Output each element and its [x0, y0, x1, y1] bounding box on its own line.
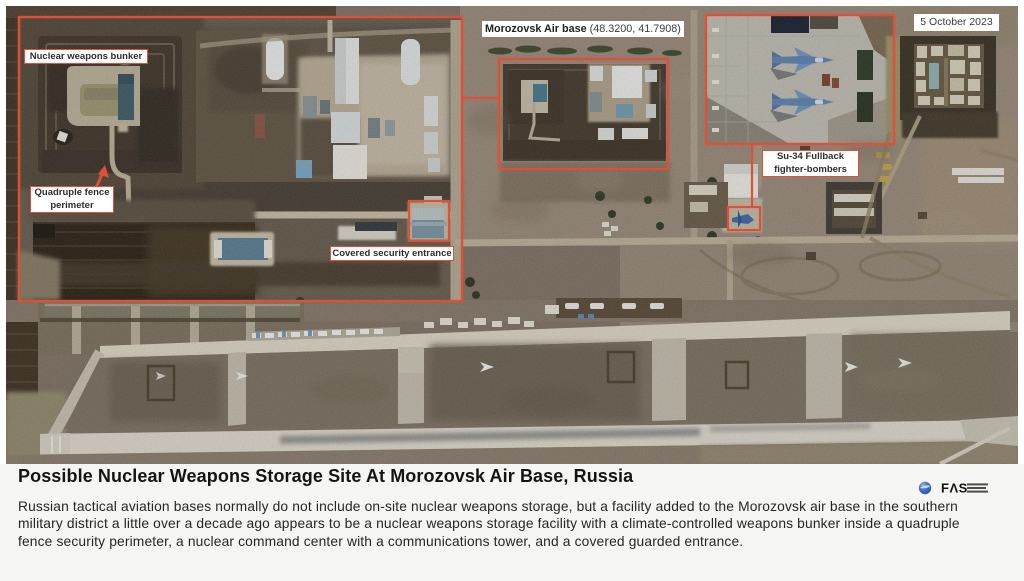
svg-text:FΛS: FΛS — [941, 481, 968, 496]
